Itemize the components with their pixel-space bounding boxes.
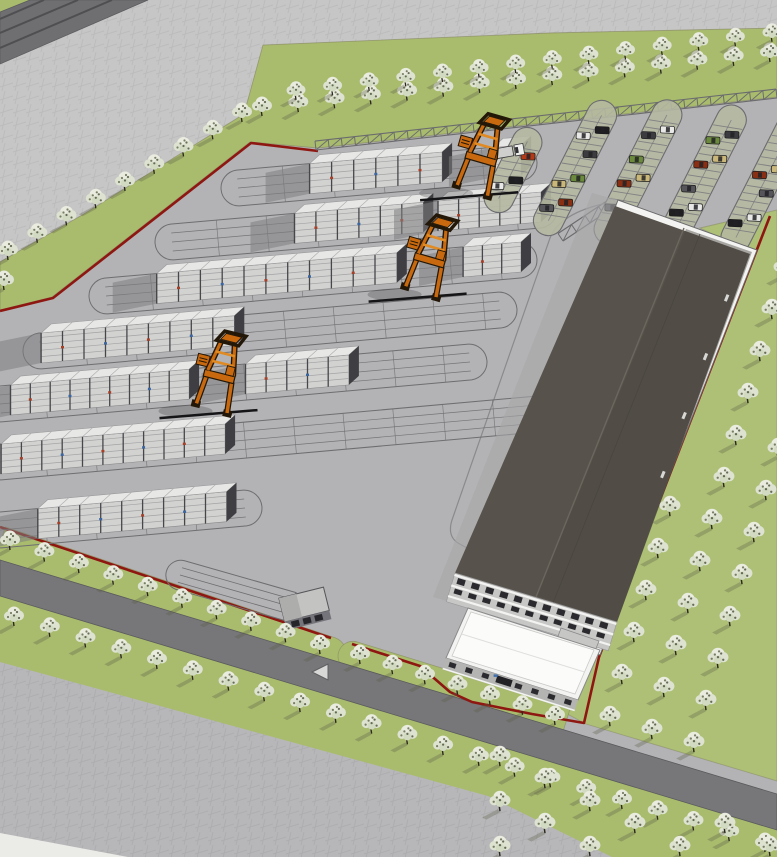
parked-car [629,156,643,164]
parked-car [552,180,566,188]
render-viewport [0,0,777,857]
parked-car [617,180,631,188]
parked-car [595,126,609,134]
parked-car [694,161,708,169]
parked-car [728,219,742,227]
parked-car [509,177,523,185]
parked-car [752,171,766,179]
parked-car [641,131,655,139]
parked-car [713,155,727,163]
parked-car [725,131,739,139]
parked-car [688,203,702,211]
parked-car [558,199,572,207]
parked-car [660,126,674,134]
parked-car [759,190,773,198]
parked-car [571,175,585,183]
parked-car [583,150,597,158]
parked-car [747,214,761,222]
parked-car [540,204,554,212]
parked-car [669,209,683,217]
parked-car [706,137,720,145]
parked-car [636,174,650,182]
site-plan-render [0,0,777,857]
parked-car [771,166,777,174]
parked-car [681,185,695,193]
parked-car [576,132,590,140]
entrance-sign [494,674,498,677]
